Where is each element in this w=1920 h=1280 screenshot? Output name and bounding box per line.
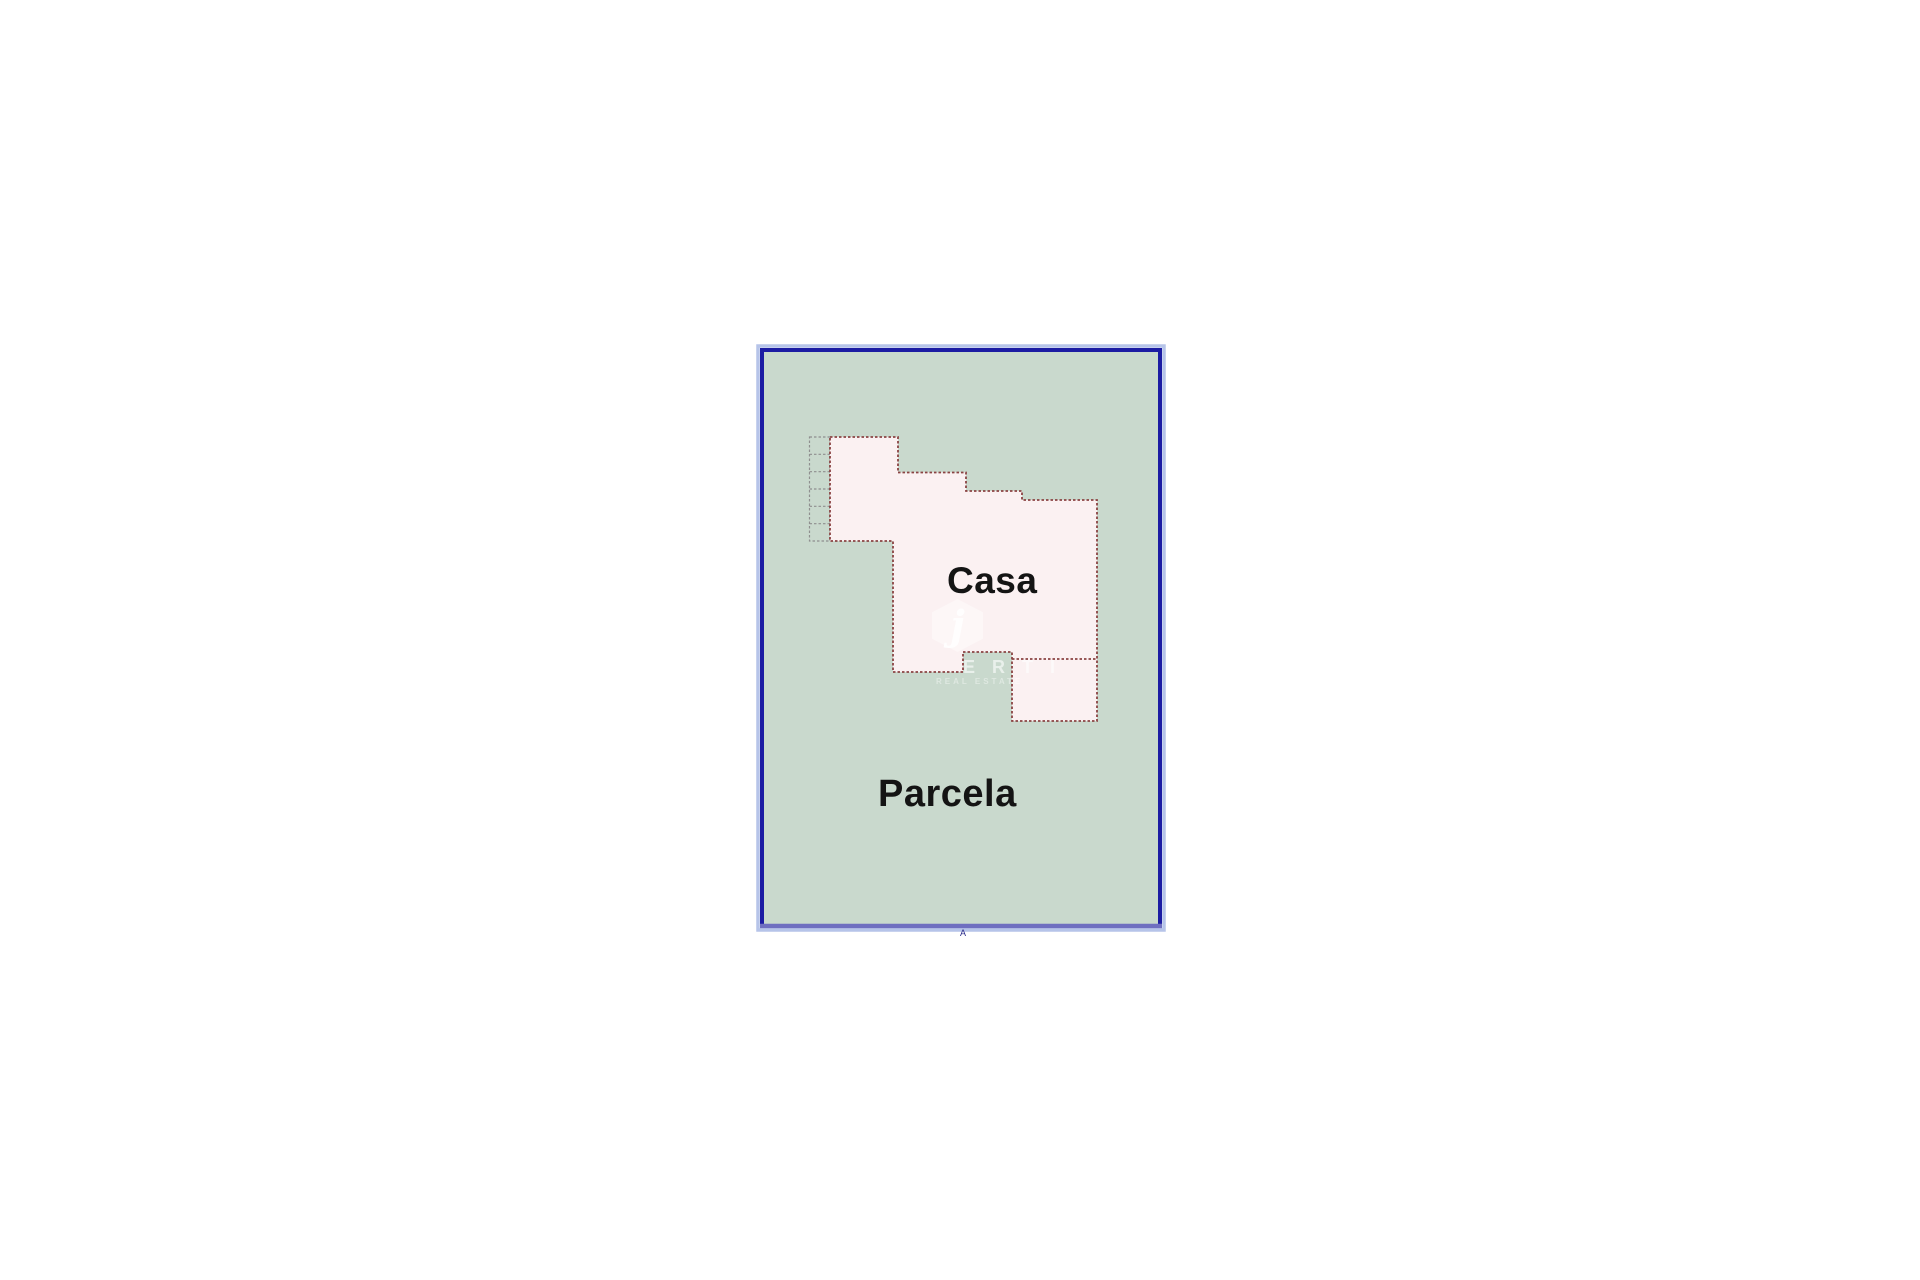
site-plan-page: A j E R T I REAL ESTATE Casa Parcela [0,0,1920,1280]
boundary-corner-mark: A [960,928,966,938]
parcel-label: Parcela [878,775,1017,813]
site-plan-drawing: A [0,0,1920,1280]
house-label: Casa [947,562,1037,599]
